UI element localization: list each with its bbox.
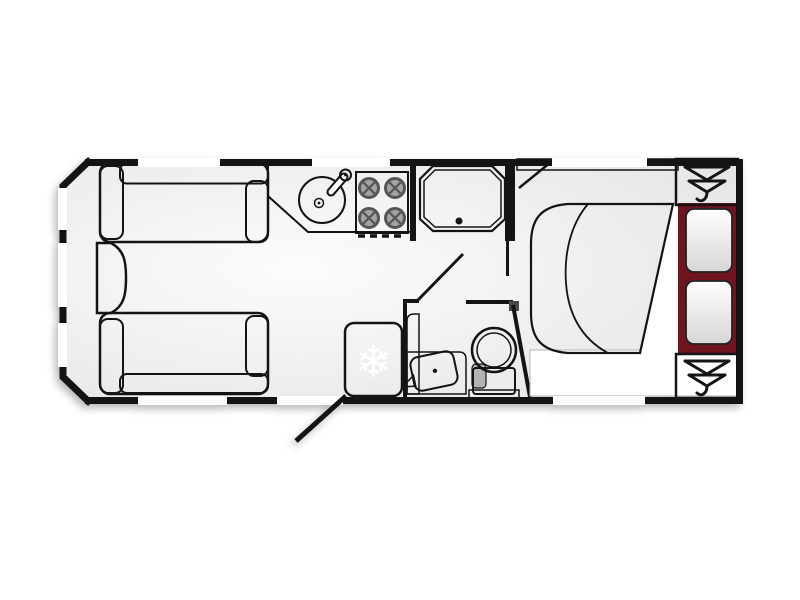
shower-drain (456, 218, 463, 225)
window (553, 396, 645, 405)
burner (360, 209, 379, 228)
burner (360, 179, 379, 198)
snowflake-icon: ❄ (355, 337, 392, 388)
pillow (686, 209, 732, 272)
doorway (277, 396, 343, 405)
shower-wall-right (505, 159, 515, 241)
floorplan-canvas: ❄ (0, 0, 800, 600)
burner (386, 179, 405, 198)
window (58, 188, 67, 230)
bathroom-wall (466, 300, 513, 304)
caravan-floorplan: ❄ (0, 0, 800, 600)
pillow (686, 281, 732, 344)
window (58, 243, 67, 307)
window (312, 158, 390, 167)
window (138, 158, 220, 167)
window (138, 396, 227, 405)
burner (386, 209, 405, 228)
partition (506, 241, 509, 276)
window (58, 323, 67, 367)
window (552, 158, 647, 167)
shower-wall-left (410, 160, 416, 241)
